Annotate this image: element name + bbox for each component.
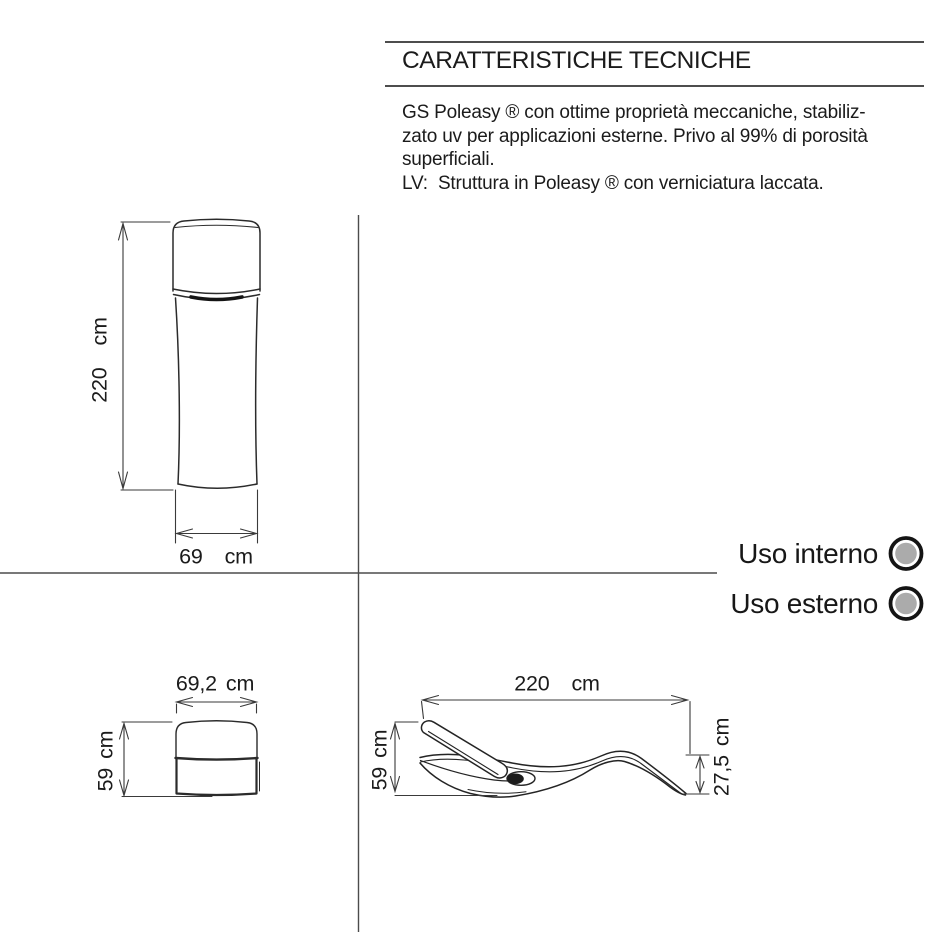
- uso-esterno-label: Uso esterno: [730, 588, 878, 620]
- section-title: CARATTERISTICHE TECNICHE: [402, 49, 751, 74]
- dim-value: 59: [368, 767, 392, 791]
- back-height-label: 59cm: [94, 731, 119, 792]
- dim-value: 69,2: [176, 672, 217, 696]
- side-ext-left-top: [422, 702, 424, 719]
- body-right-edge: [256, 298, 258, 484]
- back-width-label: 69,2cm: [176, 672, 254, 697]
- dim-value: 27,5: [710, 755, 734, 796]
- title-rule-top: [385, 41, 924, 43]
- dim-unit: cm: [94, 731, 118, 759]
- headrest-band-shadow: [191, 297, 242, 300]
- backrest-bar: [421, 721, 507, 778]
- dim-unit: cm: [225, 545, 253, 569]
- dim-unit: cm: [572, 672, 600, 696]
- uso-esterno-dot: [895, 593, 917, 615]
- side-foot-height-label: 27,5cm: [710, 718, 735, 796]
- body-bottom-edge: [178, 484, 257, 488]
- back-upper-outline: [176, 721, 257, 758]
- headrest-top-inner-line: [175, 225, 258, 227]
- body-left-edge: [176, 298, 180, 484]
- side-height-label: 59cm: [368, 730, 393, 791]
- back-lower-outline: [177, 759, 257, 795]
- front-view-dimension-lines: [119, 222, 258, 543]
- dim-unit: cm: [368, 730, 392, 758]
- seat-underside-inner-line: [468, 790, 526, 794]
- back-view-drawing: [176, 721, 260, 795]
- description-line-2: zato uv per applicazioni esterne. Privo …: [402, 125, 868, 149]
- front-height-label: 220cm: [88, 317, 113, 403]
- description-line-3: superficiali.: [402, 148, 868, 172]
- side-view-drawing: [420, 721, 686, 797]
- usage-indicators: [891, 538, 922, 619]
- back-view-dimension-lines: [120, 698, 257, 797]
- technical-spec-sheet: { "tech_specs": { "title": "CARATTERISTI…: [0, 0, 950, 950]
- front-width-label: 69cm: [179, 545, 253, 570]
- uso-interno-label: Uso interno: [738, 538, 878, 570]
- title-rule-bottom: [385, 85, 924, 87]
- headrest-band-upper: [173, 289, 260, 294]
- side-length-label: 220cm: [514, 672, 600, 697]
- dim-unit: cm: [710, 718, 734, 746]
- tech-description: GS Poleasy ® con ottime proprietà meccan…: [402, 101, 868, 195]
- dim-value: 220: [514, 672, 549, 696]
- description-line-1: GS Poleasy ® con ottime proprietà meccan…: [402, 101, 868, 125]
- dim-value: 69: [179, 545, 203, 569]
- dim-unit: cm: [226, 672, 254, 696]
- dim-value: 220: [88, 367, 112, 402]
- backrest-bar-inner-line: [429, 732, 499, 775]
- dim-value: 59: [94, 768, 118, 792]
- uso-interno-dot: [895, 543, 917, 565]
- headrest-outline: [173, 219, 260, 291]
- description-line-4: LV: Struttura in Poleasy ® con verniciat…: [402, 172, 868, 196]
- wheel-detail-dark: [507, 774, 524, 785]
- back-seam-line: [176, 758, 258, 760]
- front-view-drawing: [173, 219, 260, 488]
- dim-unit: cm: [88, 317, 112, 345]
